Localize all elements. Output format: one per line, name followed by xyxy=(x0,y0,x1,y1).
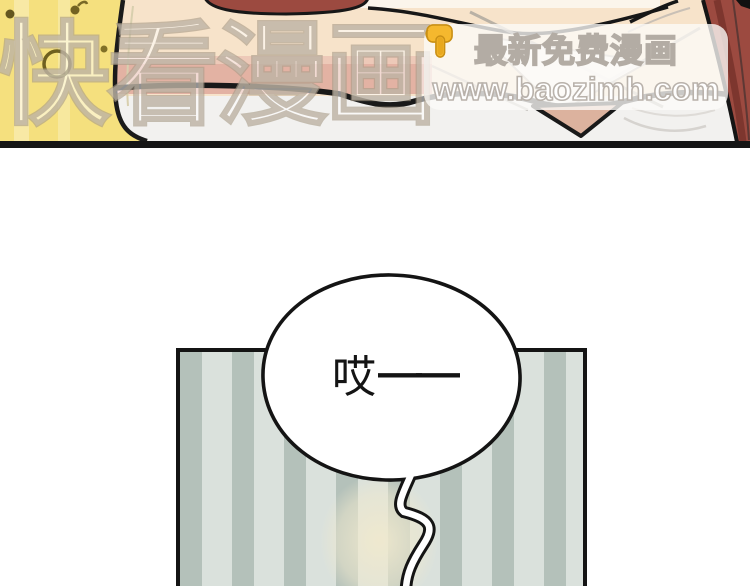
ad-banner-row: 最新免费漫画 xyxy=(437,29,715,71)
pointing-down-icon xyxy=(685,32,715,68)
ad-url: www.baozimh.com xyxy=(433,73,720,105)
panel-divider-bar xyxy=(0,141,750,148)
speech-text: 哎 xyxy=(332,341,376,405)
pillow-dot xyxy=(71,6,80,15)
pillow-dot xyxy=(6,10,15,19)
lamp-glow xyxy=(303,456,455,586)
speech-bubble-text: 哎—— xyxy=(300,346,486,400)
ad-headline: 最新免费漫画 xyxy=(474,34,678,67)
speech-dash: —— xyxy=(378,348,454,398)
pillow-dot xyxy=(101,46,108,53)
ad-banner[interactable]: 最新免费漫画 www.baozimh.com xyxy=(424,24,728,110)
pillow-streak xyxy=(14,0,29,141)
comic-panel-top: 快看漫画 最新免费漫画 xyxy=(0,0,750,141)
comic-page: 快看漫画 最新免费漫画 xyxy=(0,0,750,586)
sheet-highlight xyxy=(360,0,660,8)
